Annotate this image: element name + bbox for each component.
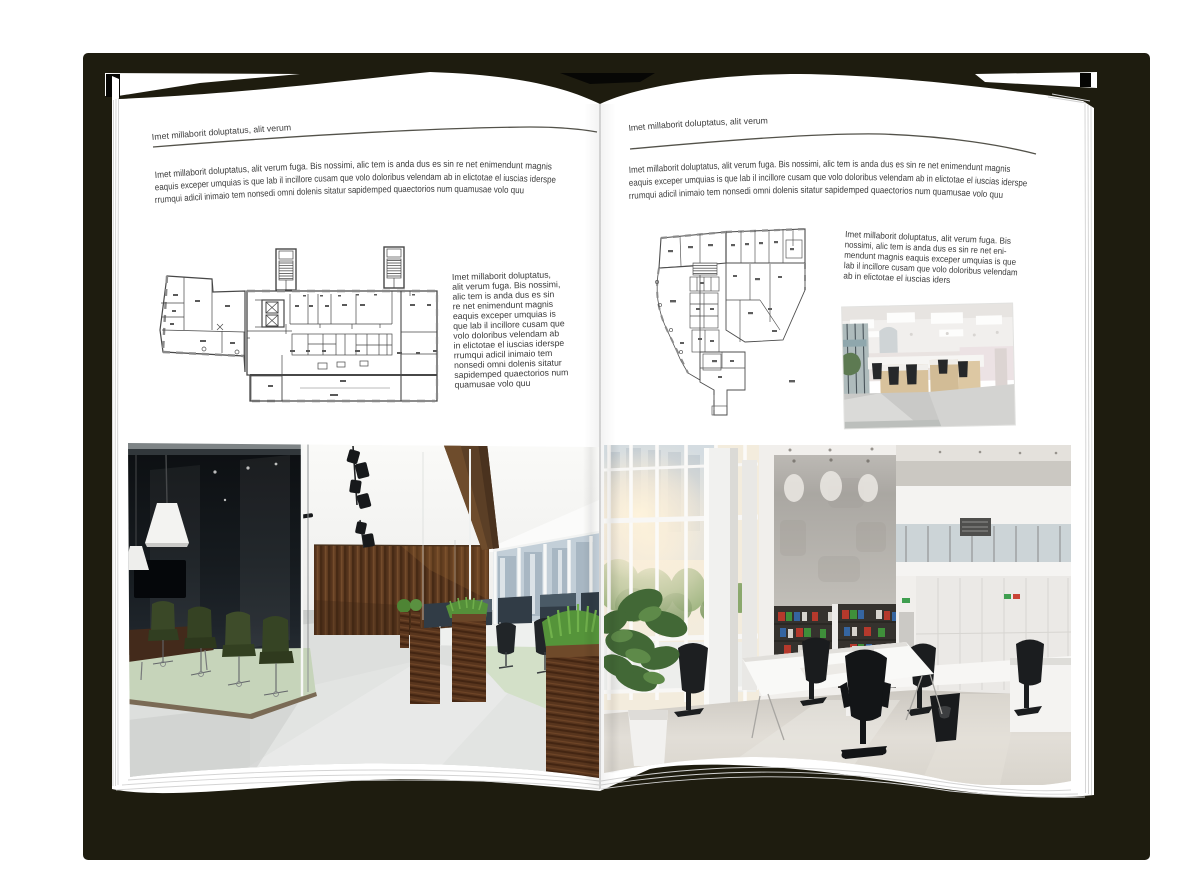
svg-text:quamusae volo quu: quamusae volo quu bbox=[454, 378, 530, 390]
